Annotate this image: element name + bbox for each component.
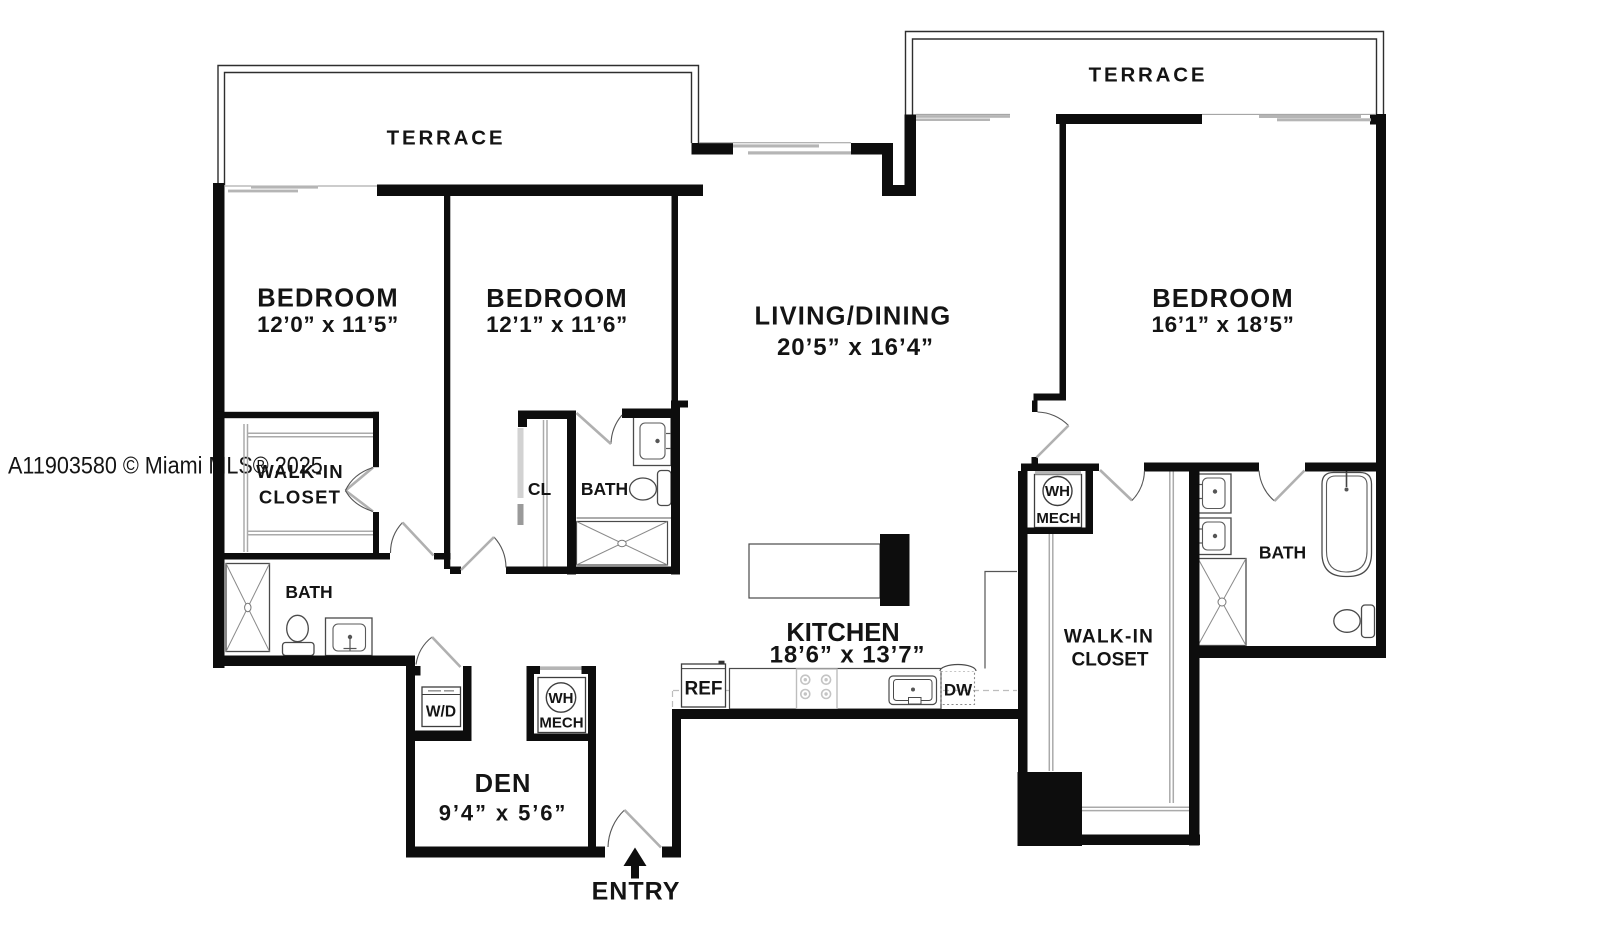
svg-text:BATH: BATH <box>1259 543 1306 563</box>
svg-text:WH: WH <box>1045 483 1070 500</box>
svg-text:18’6” x 13’7”: 18’6” x 13’7” <box>770 642 926 669</box>
svg-text:TERRACE: TERRACE <box>1089 64 1208 87</box>
svg-text:REF: REF <box>685 679 723 700</box>
svg-text:WALK-IN: WALK-IN <box>256 461 344 482</box>
svg-text:16’1” x 18’5”: 16’1” x 18’5” <box>1152 312 1295 337</box>
svg-text:9’4” x 5’6”: 9’4” x 5’6” <box>439 801 568 826</box>
svg-text:DEN: DEN <box>475 770 532 798</box>
svg-text:BATH: BATH <box>285 582 332 602</box>
svg-text:CLOSET: CLOSET <box>259 487 341 508</box>
svg-text:BEDROOM: BEDROOM <box>1152 285 1294 313</box>
svg-text:W/D: W/D <box>426 704 456 721</box>
svg-text:12’1” x 11’6”: 12’1” x 11’6” <box>486 312 628 337</box>
svg-text:DW: DW <box>944 681 973 700</box>
svg-text:CL: CL <box>528 479 552 499</box>
svg-text:12’0” x 11’5”: 12’0” x 11’5” <box>257 312 399 337</box>
svg-text:TERRACE: TERRACE <box>387 127 506 150</box>
svg-text:WH: WH <box>549 690 574 707</box>
svg-text:MECH: MECH <box>1036 510 1080 527</box>
svg-text:LIVING/DINING: LIVING/DINING <box>755 303 952 331</box>
svg-text:ENTRY: ENTRY <box>592 878 681 906</box>
svg-text:MECH: MECH <box>539 715 583 732</box>
svg-text:CLOSET: CLOSET <box>1071 650 1148 671</box>
svg-text:WALK-IN: WALK-IN <box>1064 627 1154 648</box>
svg-text:20’5” x 16’4”: 20’5” x 16’4” <box>777 334 934 361</box>
svg-text:BEDROOM: BEDROOM <box>257 285 399 313</box>
svg-text:BATH: BATH <box>581 479 628 499</box>
svg-text:BEDROOM: BEDROOM <box>486 285 628 313</box>
